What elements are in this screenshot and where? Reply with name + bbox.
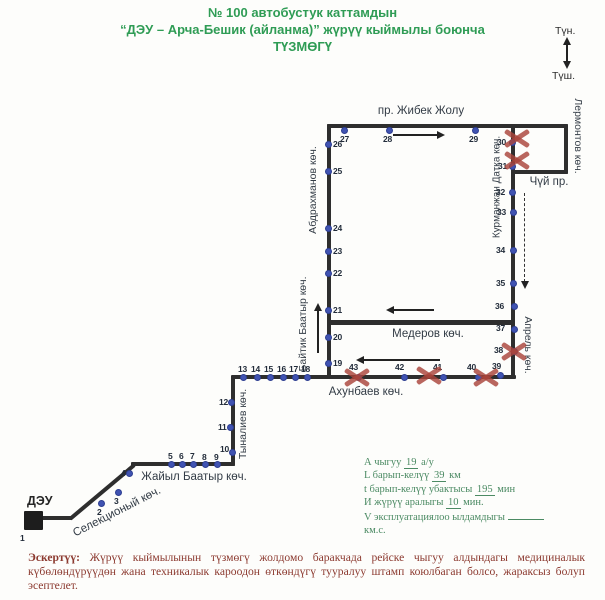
stat-line: L барып-келүү 39 км <box>364 469 599 482</box>
bus-stop-number: 10 <box>220 444 229 454</box>
bus-stop-number: 22 <box>333 268 342 278</box>
stat-unit: км <box>446 470 460 481</box>
direction-arrow-head <box>356 356 364 364</box>
direction-arrow-head <box>563 61 571 69</box>
stat-value: 19 <box>404 457 419 469</box>
street-label: пр. Жибек Жолу <box>378 105 464 117</box>
bus-stop-marker <box>341 127 348 134</box>
stat-value: 39 <box>432 470 447 482</box>
street-label: Байтик Баатыр көч. <box>297 276 309 371</box>
bus-stop-number: 36 <box>495 301 504 311</box>
stat-value: 10 <box>446 497 461 509</box>
bus-stop-marker <box>325 248 332 255</box>
bus-stop-number: 32 <box>496 187 505 197</box>
bus-stop-number: 42 <box>395 362 404 372</box>
bus-stop-number: 12 <box>219 397 228 407</box>
bus-stop-marker <box>510 209 517 216</box>
street-label: Абдрахманов көч. <box>307 146 319 234</box>
bus-stop-marker <box>292 374 299 381</box>
stat-unit: а/у <box>418 457 433 468</box>
route-line-segment <box>40 516 72 520</box>
bus-stop-number: 28 <box>383 134 392 144</box>
bus-stop-marker <box>267 374 274 381</box>
bus-stop-number: 6 <box>179 451 184 461</box>
bus-stop-number: 7 <box>190 451 195 461</box>
street-label: Тыналиев көч. <box>237 389 249 459</box>
bus-stop-marker <box>325 307 332 314</box>
bus-stop-number: 18 <box>301 364 310 374</box>
bus-stop-number: 20 <box>333 332 342 342</box>
bus-stop-marker <box>115 489 122 496</box>
bus-stop-marker <box>511 326 518 333</box>
bus-stop-marker <box>228 399 235 406</box>
bus-stop-number: 4 <box>121 468 126 478</box>
bus-stop-number: 19 <box>333 358 342 368</box>
bus-stop-number: 24 <box>333 223 342 233</box>
bus-stop-marker <box>168 461 175 468</box>
route-line-segment <box>564 124 568 174</box>
stat-unit: мин <box>495 484 516 495</box>
crossed-out-mark <box>504 150 530 170</box>
stat-blank-value <box>508 510 544 520</box>
stat-line: А чыгуу 19 а/у <box>364 456 599 469</box>
bus-stop-number: 27 <box>340 134 349 144</box>
bus-stop-number: 17 <box>289 364 298 374</box>
bus-stop-number: 29 <box>469 134 478 144</box>
bus-stop-marker <box>510 280 517 287</box>
street-label: Ахунбаев көч. <box>329 386 404 398</box>
bus-stop-marker <box>511 303 518 310</box>
direction-arrow <box>362 359 440 361</box>
direction-arrow <box>392 309 434 311</box>
bus-stop-marker <box>227 424 234 431</box>
stat-label: И жүрүү аралыгы <box>364 497 446 508</box>
bus-stop-marker <box>126 470 133 477</box>
direction-arrow <box>393 134 439 136</box>
bus-stop-number: 8 <box>202 452 207 462</box>
direction-arrow-head <box>563 37 571 45</box>
street-label: Жайыл Баатыр көч. <box>141 471 247 483</box>
stat-label: км.с. <box>364 525 386 536</box>
direction-arrow-head <box>386 306 394 314</box>
bus-stop-marker <box>509 189 516 196</box>
bus-stop-marker <box>304 374 311 381</box>
bus-stop-marker <box>98 500 105 507</box>
crossed-out-mark <box>501 341 527 361</box>
bus-stop-number: 2 <box>97 507 102 517</box>
bus-stop-marker <box>401 374 408 381</box>
stat-label: t барып-келүү убактысы <box>364 484 475 495</box>
bus-stop-marker <box>229 449 236 456</box>
direction-arrow-head <box>314 303 322 311</box>
dashed-direction-arrow <box>524 193 525 282</box>
bus-stop-marker <box>325 168 332 175</box>
stat-label: А чыгуу <box>364 457 404 468</box>
route-line-segment <box>327 124 568 128</box>
stat-line: км.с. <box>364 524 599 537</box>
bus-stop-marker <box>325 270 332 277</box>
stat-label: V эксплуатациялоо ылдамдыгы <box>364 512 508 523</box>
street-label: Чүй пр. <box>530 176 569 188</box>
stat-unit: мин. <box>461 497 484 508</box>
bus-stop-marker <box>280 374 287 381</box>
bus-stop-number: 9 <box>214 452 219 462</box>
depot-label: ДЭУ <box>27 494 53 508</box>
bus-stop-number: 37 <box>496 323 505 333</box>
direction-arrow <box>317 309 319 353</box>
bus-stop-marker <box>179 461 186 468</box>
street-label: Медеров көч. <box>392 328 464 340</box>
stat-line: V эксплуатациялоо ылдамдыгы <box>364 510 599 524</box>
bus-stop-marker <box>325 141 332 148</box>
bus-stop-marker <box>325 334 332 341</box>
bus-stop-marker <box>254 374 261 381</box>
bus-stop-number: 25 <box>333 166 342 176</box>
direction-arrow-head <box>521 281 529 289</box>
note-keyword: Эскертүү: <box>28 551 80 564</box>
compass-arrow-icon <box>566 42 568 63</box>
note-text: Эскертүү: Жүрүү кыймылынын түзмөгү жолдо… <box>28 551 585 592</box>
bus-stop-number: 11 <box>218 422 227 432</box>
bus-stop-marker <box>325 360 332 367</box>
bus-stop-marker <box>325 225 332 232</box>
stat-line: И жүрүү аралыгы 10 мин. <box>364 496 599 509</box>
bus-stop-number: 15 <box>264 364 273 374</box>
direction-arrow-head <box>437 131 445 139</box>
bus-stop-number: 1 <box>20 533 25 543</box>
stat-value: 195 <box>475 484 495 496</box>
crossed-out-mark <box>344 367 370 387</box>
bus-stop-number: 21 <box>333 305 342 315</box>
bus-stop-number: 35 <box>496 278 505 288</box>
scanned-route-scheme: № 100 автобустук каттамдын “ДЭУ – Арча-Б… <box>0 0 605 600</box>
crossed-out-mark <box>416 365 442 385</box>
bus-stop-number: 13 <box>238 364 247 374</box>
bus-stop-marker <box>472 127 479 134</box>
bus-stop-number: 34 <box>496 245 505 255</box>
route-line-segment <box>329 320 513 325</box>
bus-stop-number: 3 <box>114 496 119 506</box>
bus-stop-number: 33 <box>497 207 506 217</box>
depot-terminal-square <box>24 511 43 530</box>
bus-stop-number: 16 <box>277 364 286 374</box>
bus-stop-number: 14 <box>251 364 260 374</box>
street-label: Лермонтов көч. <box>572 98 584 173</box>
crossed-out-mark <box>504 128 530 148</box>
route-stats-block: А чыгуу 19 а/уL барып-келүү 39 кмt барып… <box>364 456 599 537</box>
bus-stop-marker <box>190 461 197 468</box>
bus-stop-number: 23 <box>333 246 342 256</box>
stat-label: L барып-келүү <box>364 470 432 481</box>
bus-stop-marker <box>510 247 517 254</box>
note-body: Жүрүү кыймылынын түзмөгү жолдомо баракча… <box>28 551 585 592</box>
crossed-out-mark <box>473 367 499 387</box>
stat-line: t барып-келүү убактысы 195 мин <box>364 483 599 496</box>
route-line-segment <box>512 170 568 174</box>
bus-stop-marker <box>386 127 393 134</box>
bus-stop-number: 5 <box>168 451 173 461</box>
bus-stop-marker <box>240 374 247 381</box>
